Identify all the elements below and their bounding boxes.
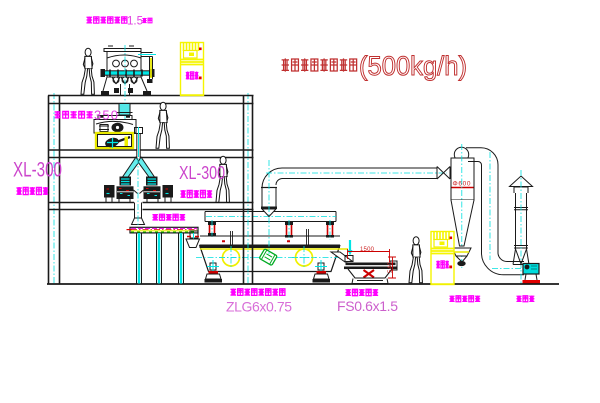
svg-text:1500: 1500 xyxy=(360,247,375,253)
svg-text:ZLG6x0.75: ZLG6x0.75 xyxy=(226,299,292,315)
svg-text:350: 350 xyxy=(94,108,118,123)
svg-text:FS0.6x1.5: FS0.6x1.5 xyxy=(337,298,398,314)
svg-text:XL-300: XL-300 xyxy=(13,159,62,182)
svg-text:XL-300: XL-300 xyxy=(179,162,225,183)
svg-text:1.5: 1.5 xyxy=(127,16,143,28)
svg-text:(500kg/h): (500kg/h) xyxy=(359,51,467,81)
svg-text:540: 540 xyxy=(388,261,394,273)
